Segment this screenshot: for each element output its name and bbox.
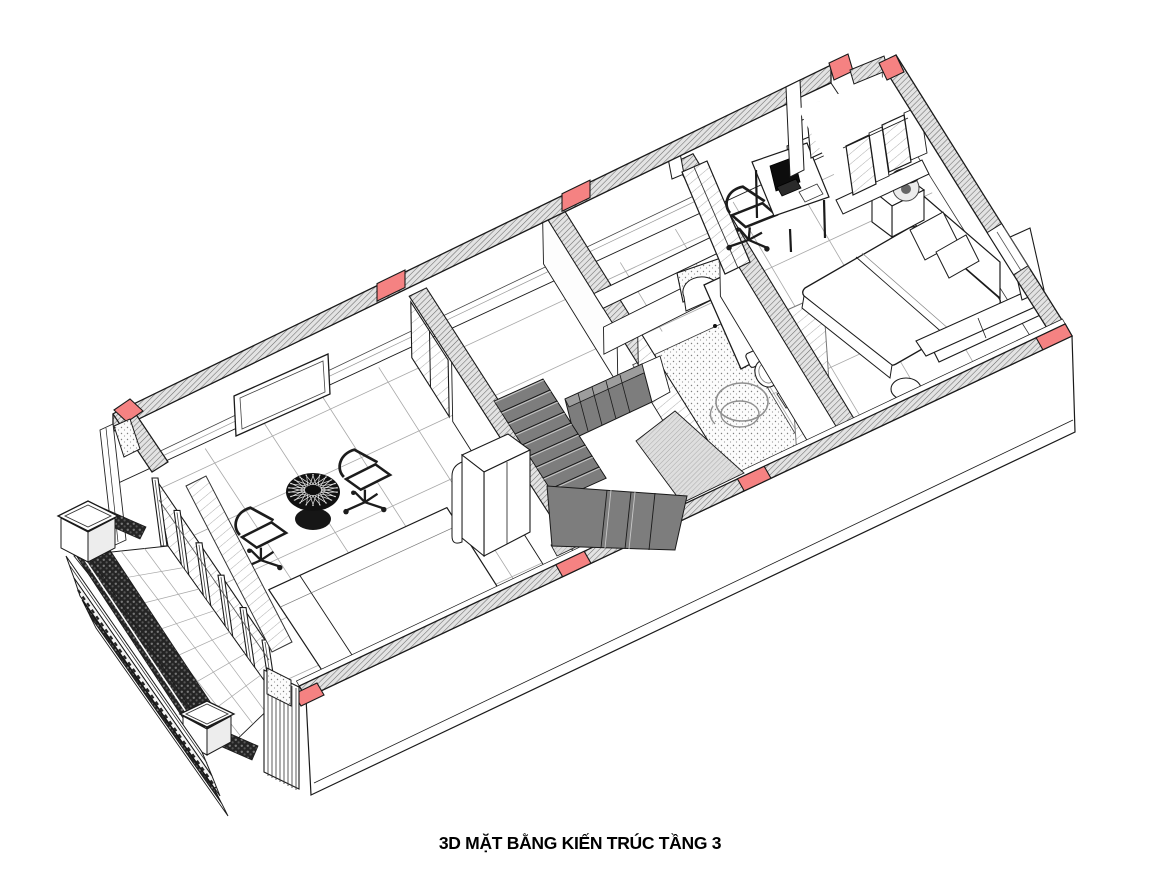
- svg-text:3D MẶT BẰNG KIẾN TRÚC TẦNG 3: 3D MẶT BẰNG KIẾN TRÚC TẦNG 3: [439, 832, 722, 853]
